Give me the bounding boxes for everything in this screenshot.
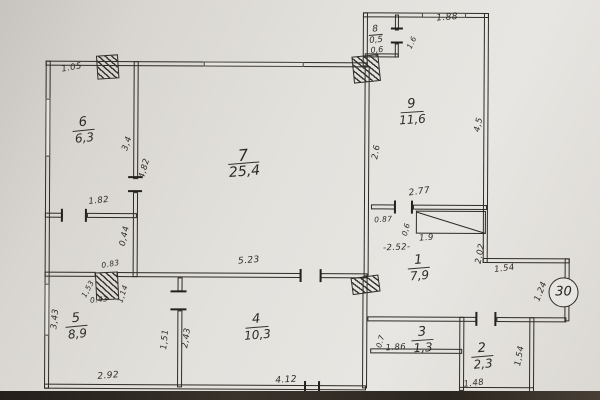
room-3-number: 3 <box>410 325 433 341</box>
dim-room6-right-a: 3,4 <box>120 135 134 152</box>
room-2-area: 2,3 <box>471 356 494 373</box>
door-tick <box>475 312 477 326</box>
dim-closet: 1.9 <box>419 233 434 244</box>
dim-room3-bottom: 1.86 <box>385 342 406 353</box>
door-tick <box>494 312 496 326</box>
room-8-label: 8 0,5 0,6 <box>367 16 384 55</box>
wall-room57-a <box>45 272 96 277</box>
dim-room9-bottom: 2.77 <box>408 186 431 199</box>
dim-room4-top: 5.23 <box>238 255 260 267</box>
dim-porch-top: 1.54 <box>494 263 516 275</box>
room-4-area: 10,3 <box>244 327 272 344</box>
room-9-area: 11,6 <box>399 112 427 129</box>
door-tick <box>320 269 322 282</box>
room-1-area: 7,9 <box>408 268 431 285</box>
door-tick <box>170 308 186 310</box>
room-5-label: 5 8,9 <box>64 306 90 343</box>
dim-vent-bottom: 0.43 <box>89 294 108 305</box>
dim-door54-left: 1,51 <box>159 329 171 350</box>
vent-shaft-top-icon <box>96 54 120 79</box>
dim-top-left: 1.05 <box>61 61 83 74</box>
dim-room8-door: 1.6 <box>405 35 419 51</box>
door-tick <box>411 201 413 214</box>
room-3-area: 1,3 <box>411 340 434 356</box>
dim-porch-side: 1.24 <box>532 280 549 303</box>
door-tick <box>394 200 396 213</box>
room-6-area: 6,3 <box>73 130 97 147</box>
dim-room9-left: 2.6 <box>370 144 382 160</box>
vent-shaft-middle-icon <box>351 54 381 84</box>
outer-wall-porch-top <box>483 258 570 263</box>
dim-room4-bottom: 4.12 <box>275 374 297 385</box>
dim-hall-seg: 0.87 <box>374 214 393 224</box>
room-1-label: 1 7,9 <box>406 248 431 285</box>
door-tick <box>391 41 403 43</box>
door-tick <box>61 209 63 222</box>
dim-hall-seg-small: 0,6 <box>400 222 412 237</box>
room-3-label: 3 1,3 <box>410 320 434 356</box>
wall-hall-room9-b <box>413 205 487 210</box>
dim-room5-bottom: 2.92 <box>97 370 119 382</box>
apartment-number-circle: 30 <box>548 277 578 307</box>
photo-edge <box>0 391 600 400</box>
wall-room7-hall <box>364 66 370 276</box>
room-7-area: 25,4 <box>228 163 260 181</box>
dim-room6-right-b: 4,82 <box>137 157 152 179</box>
dim-door54-right: 2,43 <box>180 327 193 349</box>
vent-shaft-room4-icon <box>351 275 381 296</box>
door-tick <box>128 190 142 192</box>
floor-plan-paper: 7 25,4 6 6,3 9 11,6 8 0,5 0,6 1 7,9 5 8,… <box>0 0 600 400</box>
door-tick <box>300 269 302 282</box>
dim-room6-bottom: 1.82 <box>88 195 109 207</box>
room6-bottom-wall-b <box>87 213 137 218</box>
wall-room6-room7-b <box>133 192 138 277</box>
room-7-label: 7 25,4 <box>227 144 261 180</box>
wall-hall-room9-a <box>371 204 395 209</box>
room-9-number: 9 <box>400 97 423 113</box>
wall-room57-b <box>117 272 301 278</box>
dim-hall-width: -2.52- <box>383 242 411 253</box>
room-6-label: 6 6,3 <box>71 110 97 147</box>
dim-below-room6: 0,44 <box>118 225 132 247</box>
door-tick <box>171 290 187 292</box>
wall-room6-room7-a <box>133 61 139 179</box>
room-4-label: 4 10,3 <box>242 307 271 344</box>
room7-window <box>204 61 304 67</box>
door-tick <box>391 27 403 29</box>
door-tick <box>85 209 87 222</box>
scanned-floor-plan-photo: 7 25,4 6 6,3 9 11,6 8 0,5 0,6 1 7,9 5 8,… <box>0 0 600 400</box>
dim-vent-top: 0.83 <box>101 258 121 270</box>
dim-left-wall: 3,43 <box>49 308 61 329</box>
room-5-area: 8,9 <box>66 326 90 343</box>
dim-room2-right: 1,54 <box>513 345 527 367</box>
dim-room9-top: 1.88 <box>436 12 458 24</box>
room-8-sub-dim: 0,6 <box>370 45 384 55</box>
room6-window <box>45 99 50 157</box>
room-9-label: 9 11,6 <box>397 92 426 129</box>
room2-right-wall <box>529 317 534 392</box>
wall-room5-room4-a <box>178 277 183 291</box>
room-2-label: 2 2,3 <box>470 336 495 373</box>
wall-room5-room4-b <box>177 310 182 387</box>
